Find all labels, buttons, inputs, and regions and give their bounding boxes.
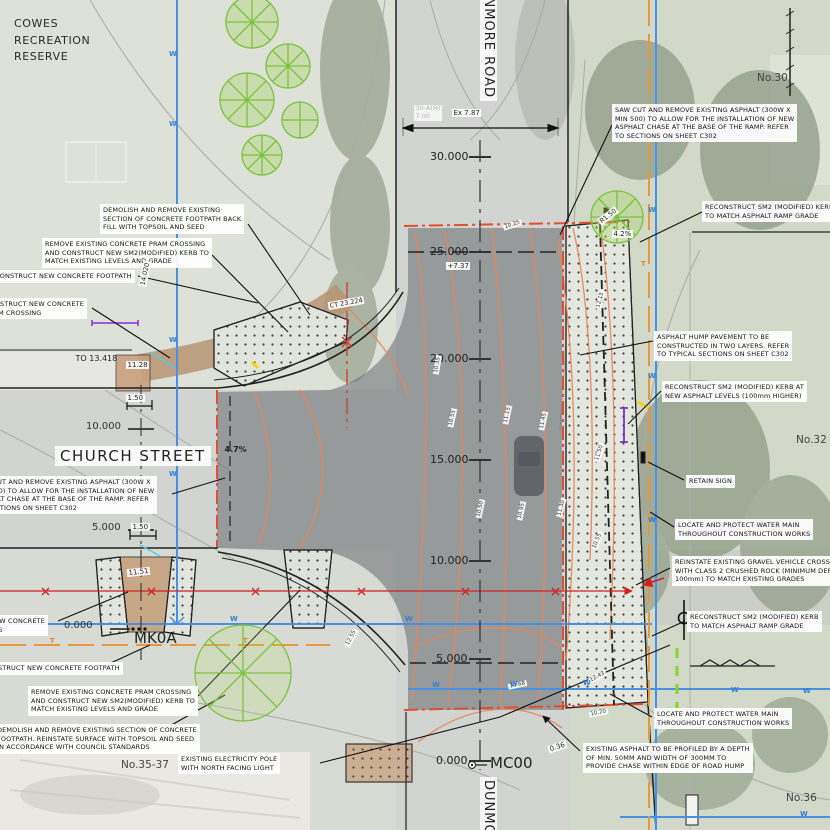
annotation-reconstruct-kerb-levels: RECONSTRUCT SM2 (MODIFIED) KERB AT NEW A… xyxy=(662,381,807,402)
annotation-reconstruct-kerb-se: RECONSTRUCT SM2 (MODIFIED) KERB TO MATCH… xyxy=(687,611,822,632)
water-marker: W xyxy=(510,680,518,688)
annotation-water-main-east: LOCATE AND PROTECT WATER MAIN THROUGHOUT… xyxy=(675,519,813,540)
grade-east: 4.2% xyxy=(612,230,633,238)
control-point-mk0a: MK0A xyxy=(134,629,177,647)
grade-west: 4.7% xyxy=(223,445,248,454)
water-marker: W xyxy=(432,681,440,689)
annotation-remove-pram-nw: REMOVE EXISTING CONCRETE PRAM CROSSING A… xyxy=(42,238,212,268)
dunmore-road-label-bottom: DUNMORE ROAD xyxy=(480,777,497,830)
chainage-25000: 25.000 xyxy=(430,245,469,258)
control-point-mc00: MC00 xyxy=(490,754,533,772)
reserve-label: COWES RECREATION RESERVE xyxy=(14,16,90,66)
dim-faint-note: 30-A(N) 7.00 xyxy=(414,105,442,121)
water-marker: W xyxy=(169,50,177,58)
annotation-gravel-crossing: REINSTATE EXISTING GRAVEL VEHICLE CROSSI… xyxy=(672,556,830,586)
annotation-asphalt-profile: EXISTING ASPHALT TO BE PROFILED BY A DEP… xyxy=(583,743,753,773)
kerb-chainage-to: TO 13.418 xyxy=(74,354,119,363)
water-marker: W xyxy=(803,687,811,695)
water-marker: W xyxy=(648,516,656,524)
annotation-new-pram-sw: CONSTRUCT NEW CONCRETE PRAM CROSSING xyxy=(0,615,48,636)
annotation-new-footpath-sw: CONSTRUCT NEW CONCRETE FOOTPATH xyxy=(0,662,123,675)
water-marker: W xyxy=(405,615,413,623)
annotation-new-pram-nw: CONSTRUCT NEW CONCRETE PRAM CROSSING xyxy=(0,298,87,319)
dim-road-width: Ex 7.87 xyxy=(452,109,481,117)
chainage-0000: 0.000 xyxy=(436,754,468,767)
dim-kerb-offset-a: 1.50 xyxy=(126,394,145,402)
parcel-no36: No.36 xyxy=(786,792,817,804)
telecom-marker: T xyxy=(641,260,646,268)
annotation-sawcut-west: SAW CUT AND REMOVE EXISTING ASPHALT (300… xyxy=(0,476,157,514)
water-marker: W xyxy=(648,372,656,380)
level-a: 11.28 xyxy=(126,361,149,369)
dim-kerb-offset-b: 1.50 xyxy=(131,523,150,531)
chainage-church-0000: 0.000 xyxy=(64,620,93,631)
telecom-marker: T xyxy=(243,637,248,645)
chainage-church-5000: 5.000 xyxy=(92,522,121,533)
chainage-30000: 30.000 xyxy=(430,150,469,163)
dunmore-road-label-top: DUNMORE ROAD xyxy=(480,0,497,101)
dim-offset-25: +7.37 xyxy=(446,262,470,270)
annotation-asphalt-hump: ASPHALT HUMP PAVEMENT TO BE CONSTRUCTED … xyxy=(654,331,792,361)
water-marker: W xyxy=(169,120,177,128)
chainage-church-10000: 10.000 xyxy=(86,421,121,432)
water-marker: W xyxy=(169,336,177,344)
water-marker: W xyxy=(230,615,238,623)
chainage-15000: 15.000 xyxy=(430,453,469,466)
parked-car xyxy=(514,436,544,496)
annotation-electricity-pole: EXISTING ELECTRICITY POLE WITH NORTH FAC… xyxy=(178,753,280,774)
annotation-new-footpath-nw: CONSTRUCT NEW CONCRETE FOOTPATH xyxy=(0,270,135,283)
parcel-no35-37: No.35-37 xyxy=(121,759,169,771)
water-marker: W xyxy=(169,470,177,478)
annotation-demolish-footpath-nw: DEMOLISH AND REMOVE EXISTING SECTION OF … xyxy=(100,204,244,234)
annotation-remove-pram-sw: REMOVE EXISTING CONCRETE PRAM CROSSING A… xyxy=(28,686,198,716)
chainage-10000: 10.000 xyxy=(430,554,469,567)
annotation-water-main-south: LOCATE AND PROTECT WATER MAIN THROUGHOUT… xyxy=(654,708,792,729)
church-street-label: CHURCH STREET xyxy=(55,446,211,466)
parcel-no30: No.30 xyxy=(757,72,788,84)
annotation-sawcut-east: SAW CUT AND REMOVE EXISTING ASPHALT (300… xyxy=(612,104,797,142)
chainage-5000: 5.000 xyxy=(436,652,468,665)
annotation-demolish-footpath-sw: DEMOLISH AND REMOVE EXISTING SECTION OF … xyxy=(0,724,200,754)
annotation-retain-sign: RETAIN SIGN xyxy=(686,475,735,488)
water-marker: W xyxy=(583,679,591,687)
telecom-marker: T xyxy=(50,637,55,645)
site-plan: COWES RECREATION RESERVE CHURCH STREET D… xyxy=(0,0,830,830)
annotation-reconstruct-kerb-ne: RECONSTRUCT SM2 (MODIFIED) KERB TO MATCH… xyxy=(702,201,830,222)
water-marker: W xyxy=(648,206,656,214)
water-marker: W xyxy=(800,810,808,818)
water-marker: W xyxy=(731,686,739,694)
parcel-no32: No.32 xyxy=(796,434,827,446)
